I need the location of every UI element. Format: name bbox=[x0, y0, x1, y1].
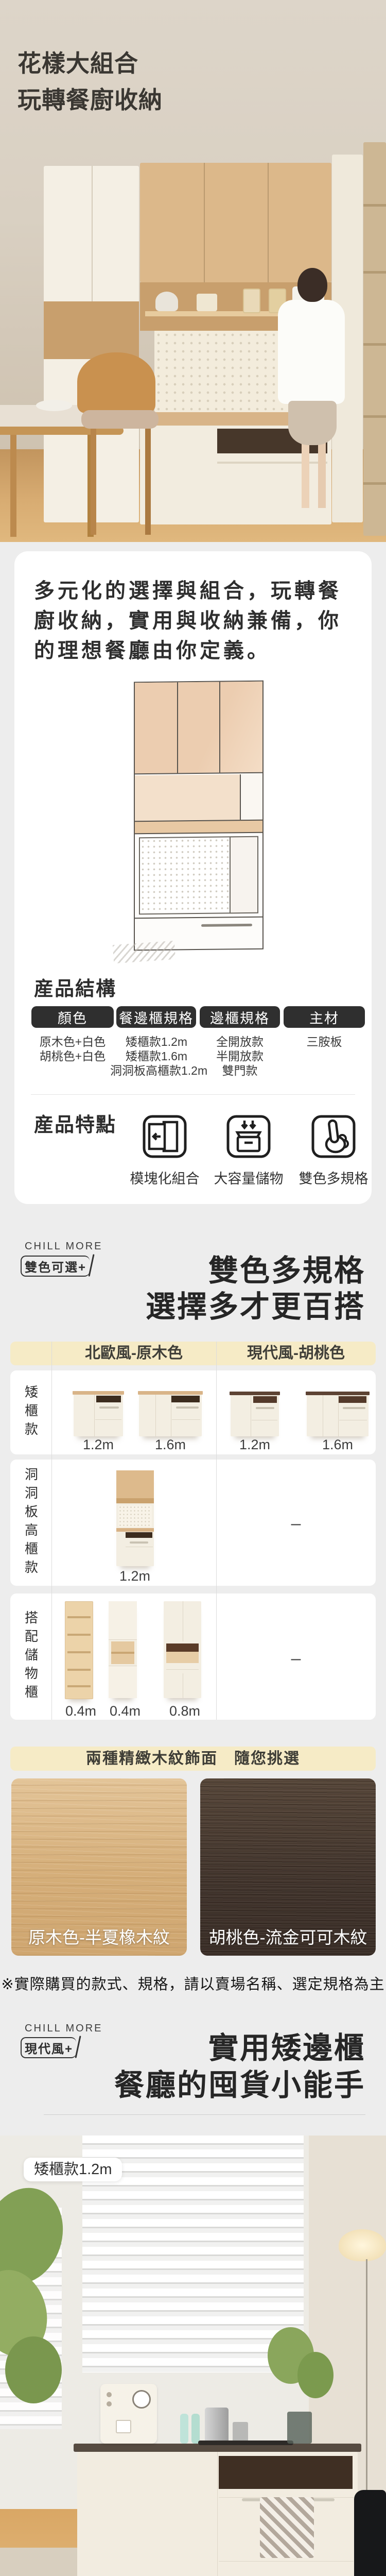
intro-card: 多元化的選擇與組合，玩轉餐廚收納，實用與收納兼備，你的理想餐廳由你定義。 産品 bbox=[14, 551, 372, 1204]
open-drawer-slot bbox=[219, 2456, 353, 2489]
seam bbox=[135, 917, 262, 919]
door-seam bbox=[155, 1395, 156, 1436]
open-shelf bbox=[166, 1652, 199, 1663]
cabinet-body bbox=[77, 2452, 358, 2576]
swatch-label: 胡桃色-流金可可木紋 bbox=[200, 1924, 376, 1948]
shelf-line bbox=[363, 271, 386, 274]
door-seam bbox=[323, 1395, 323, 1436]
shelf-line bbox=[67, 1634, 91, 1636]
hero-photo: 花樣大組合 玩轉餐廚收納 bbox=[0, 0, 386, 542]
cup bbox=[116, 2420, 131, 2433]
bottle bbox=[180, 2414, 188, 2444]
door-seam bbox=[268, 163, 269, 282]
sketch-open-shelf bbox=[135, 774, 262, 821]
chair-back bbox=[77, 352, 155, 413]
disclaimer-note: ※實際購買的款式、規格，請以賣場名稱、選定規格為主 bbox=[0, 1972, 386, 1994]
person-leg bbox=[318, 442, 326, 508]
person-hair bbox=[297, 268, 327, 302]
drawer-seam bbox=[95, 1419, 121, 1420]
door-seam bbox=[219, 682, 220, 773]
door-seam bbox=[217, 2452, 218, 2576]
value: 洞洞板高櫃款1.2m bbox=[110, 1063, 203, 1078]
divider bbox=[44, 2114, 365, 2115]
sketch-upper-doors bbox=[135, 682, 262, 775]
row-label: 搭配儲物櫃 bbox=[10, 1594, 51, 1720]
counter bbox=[116, 1528, 154, 1532]
open-shelf-unit bbox=[363, 142, 386, 536]
glass-vase bbox=[287, 2412, 312, 2444]
hero-title-line1: 花樣大組合 bbox=[17, 45, 163, 82]
shelf-band bbox=[116, 1498, 154, 1503]
door-seam bbox=[183, 1673, 183, 1698]
upper-door bbox=[109, 1601, 137, 1640]
pegboard bbox=[118, 1505, 152, 1527]
low-cabinet-1.2m-photo: 矮櫃款1.2m bbox=[0, 2136, 386, 2576]
chair-leg bbox=[145, 427, 151, 535]
moka-pot bbox=[205, 2408, 229, 2443]
structure-col-values: 矮櫃款1.2m 矮櫃款1.6m 洞洞板高櫃款1.2m bbox=[110, 1035, 203, 1078]
door-seam bbox=[92, 166, 93, 301]
floor-lamp-shade bbox=[339, 2229, 386, 2261]
person-leg bbox=[302, 442, 309, 508]
handle bbox=[343, 1407, 365, 1409]
door-seam bbox=[171, 1395, 171, 1436]
door-seam bbox=[183, 1601, 183, 1641]
person-skirt bbox=[288, 401, 337, 445]
structure-col-header: 主材 bbox=[284, 1006, 365, 1028]
open-slot bbox=[171, 1396, 200, 1402]
sketch-body bbox=[134, 681, 264, 951]
vase-greens bbox=[297, 2352, 334, 2398]
handle bbox=[256, 1407, 274, 1409]
photo-size-badge: 矮櫃款1.2m bbox=[24, 2158, 122, 2181]
cabinet-thumb-1.6m-walnut bbox=[307, 1392, 369, 1436]
size-label: 1.2m bbox=[75, 1437, 121, 1453]
cabinet-thumb-0.4m-open bbox=[65, 1601, 93, 1699]
oak-swatch: 原木色-半夏橡木紋 bbox=[11, 1778, 187, 1956]
open-slot bbox=[126, 1532, 152, 1538]
walnut-top bbox=[230, 1392, 280, 1395]
handle bbox=[176, 1406, 199, 1409]
value: 矮櫃款1.6m bbox=[110, 1049, 203, 1063]
size-label: 0.8m bbox=[162, 1703, 208, 1719]
sliding-door-icon bbox=[141, 1112, 188, 1161]
section-title-line2: 餐廳的囤貨小能手 bbox=[0, 2061, 365, 2104]
structure-col-header: 顏色 bbox=[31, 1006, 114, 1028]
open-shelf bbox=[44, 301, 139, 359]
table-divider bbox=[216, 1342, 217, 1720]
shelf-line bbox=[363, 482, 386, 485]
drawer-seam bbox=[252, 1420, 277, 1420]
table-leg bbox=[10, 434, 16, 537]
wood-doors bbox=[116, 1470, 154, 1498]
chair-seat bbox=[81, 410, 159, 429]
shelf-line bbox=[67, 1651, 91, 1653]
structure-col-header: 邊櫃規格 bbox=[200, 1006, 280, 1028]
drawer-seam bbox=[339, 1420, 367, 1420]
value: 雙門款 bbox=[200, 1063, 280, 1078]
bottle bbox=[191, 2414, 200, 2444]
drawer-seam bbox=[126, 1547, 153, 1547]
value: 胡桃色+白色 bbox=[31, 1049, 114, 1063]
swatch-label: 原木色-半夏橡木紋 bbox=[11, 1924, 187, 1948]
table-col-header-modern: 現代風-胡桃色 bbox=[216, 1342, 376, 1365]
value: 半開放款 bbox=[200, 1049, 280, 1063]
table-divider bbox=[51, 1342, 52, 1720]
structure-col-header: 餐邊櫃規格 bbox=[116, 1006, 196, 1028]
open-slot bbox=[166, 1643, 199, 1652]
walnut-swatch: 胡桃色-流金可可木紋 bbox=[200, 1778, 376, 1956]
wood-upper-doors bbox=[140, 163, 331, 282]
door-seam bbox=[204, 163, 205, 282]
not-available-dash: – bbox=[216, 1514, 376, 1534]
product-detail-page: 花樣大組合 玩轉餐廚收納 多元化的選擇與組合，玩轉餐廚收納，實用與收納兼備，你的… bbox=[0, 0, 386, 2576]
coffee-machine-dial bbox=[132, 2390, 151, 2409]
open-slot bbox=[339, 1396, 366, 1403]
value: 矮櫃款1.2m bbox=[110, 1035, 203, 1049]
shelf-line bbox=[363, 343, 386, 346]
cabinet-thumb-1.2m-oak bbox=[74, 1391, 123, 1436]
plate bbox=[36, 400, 72, 411]
sketch-pegboard bbox=[139, 836, 240, 914]
door-seam bbox=[177, 682, 178, 773]
plant bbox=[5, 2336, 62, 2403]
intro-paragraph: 多元化的選擇與組合，玩轉餐廚收納，實用與收納兼備，你的理想餐廳由你定義。 bbox=[34, 576, 358, 666]
feature-label: 雙色多規格 bbox=[287, 1167, 380, 1188]
size-label: 1.6m bbox=[314, 1437, 361, 1453]
door-seam bbox=[251, 1395, 251, 1436]
jar bbox=[243, 289, 260, 313]
wood-top bbox=[138, 1391, 203, 1395]
towel bbox=[260, 2497, 314, 2558]
row-label: 矮櫃款 bbox=[10, 1370, 51, 1454]
size-label: 1.2m bbox=[232, 1437, 278, 1453]
lower-door bbox=[109, 1666, 137, 1698]
cabinet-thumb-0.4m-door bbox=[109, 1601, 137, 1698]
door-seam bbox=[338, 1395, 339, 1436]
wood-top bbox=[73, 1391, 124, 1395]
handle bbox=[130, 1541, 148, 1544]
shelf-line bbox=[67, 1685, 91, 1687]
button bbox=[107, 2392, 112, 2397]
cabinet-thumb-1.6m-oak bbox=[139, 1391, 202, 1436]
door-seam bbox=[94, 1395, 95, 1436]
drawer-seam bbox=[172, 1419, 200, 1420]
size-label: 0.4m bbox=[58, 1703, 104, 1719]
open-slot bbox=[96, 1396, 121, 1402]
touch-select-icon bbox=[310, 1112, 357, 1161]
tray bbox=[198, 2441, 293, 2445]
bowl bbox=[197, 294, 217, 311]
cabinet-thumb-0.8m-double bbox=[164, 1601, 201, 1698]
person-shirt bbox=[278, 300, 345, 404]
shelf-line bbox=[363, 415, 386, 418]
size-label: 1.2m bbox=[112, 1568, 158, 1584]
hero-title: 花樣大組合 玩轉餐廚收納 bbox=[17, 45, 163, 118]
open-shelf bbox=[111, 1641, 134, 1664]
chair-leg bbox=[91, 427, 96, 535]
value: 全開放款 bbox=[200, 1035, 280, 1049]
handle bbox=[99, 1406, 119, 1409]
shelf-line bbox=[67, 1669, 91, 1671]
shelf-line bbox=[111, 1652, 134, 1654]
sketch-shadow bbox=[113, 941, 176, 963]
structure-col-values: 三胺板 bbox=[284, 1035, 365, 1049]
storage-box-icon bbox=[225, 1112, 272, 1161]
structure-col-values: 全開放款 半開放款 雙門款 bbox=[200, 1035, 280, 1078]
hero-title-line2: 玩轉餐廚收納 bbox=[17, 82, 163, 118]
cabinet-thumb-1.2m-walnut bbox=[231, 1392, 279, 1436]
cabinet-thumb-pegboard-1.2m bbox=[116, 1470, 154, 1566]
structure-heading: 産品結構 bbox=[34, 973, 116, 1001]
wood-finish-banner: 兩種精緻木紋飾面 隨您挑選 bbox=[10, 1747, 376, 1771]
bowl bbox=[155, 292, 178, 311]
value: 三胺板 bbox=[284, 1035, 365, 1049]
structure-col-values: 原木色+白色 胡桃色+白色 bbox=[31, 1035, 114, 1063]
sketch-handle bbox=[201, 924, 252, 927]
side-column bbox=[240, 774, 262, 820]
walnut-top bbox=[306, 1392, 370, 1395]
value: 原木色+白色 bbox=[31, 1035, 114, 1049]
size-label: 1.6m bbox=[147, 1437, 194, 1453]
black-sofa bbox=[354, 2490, 386, 2576]
shelf-line bbox=[67, 1616, 91, 1618]
coffee-machine bbox=[100, 2384, 157, 2444]
section-title-line2: 選擇多才更百搭 bbox=[0, 1282, 365, 1326]
row-label: 洞洞板高櫃款 bbox=[10, 1460, 51, 1586]
open-slot bbox=[253, 1396, 277, 1403]
drawer-seam bbox=[166, 1669, 199, 1670]
size-label: 0.4m bbox=[102, 1703, 148, 1719]
sketch-side-panel bbox=[230, 836, 258, 914]
sketch-counter bbox=[135, 820, 262, 835]
divider bbox=[31, 1094, 355, 1095]
drawer-seam bbox=[219, 2561, 354, 2562]
feature-label: 模塊化組合 bbox=[118, 1167, 211, 1188]
cabinet-illustration bbox=[127, 681, 273, 973]
features-heading: 産品特點 bbox=[34, 1109, 116, 1137]
not-available-dash: – bbox=[216, 1649, 376, 1669]
shelf-line bbox=[363, 204, 386, 207]
drawer-seam bbox=[217, 462, 327, 464]
table-col-header-nordic: 北歐風-原木色 bbox=[51, 1342, 216, 1365]
feature-label: 大容量儲物 bbox=[202, 1167, 295, 1188]
button bbox=[107, 2401, 112, 2406]
